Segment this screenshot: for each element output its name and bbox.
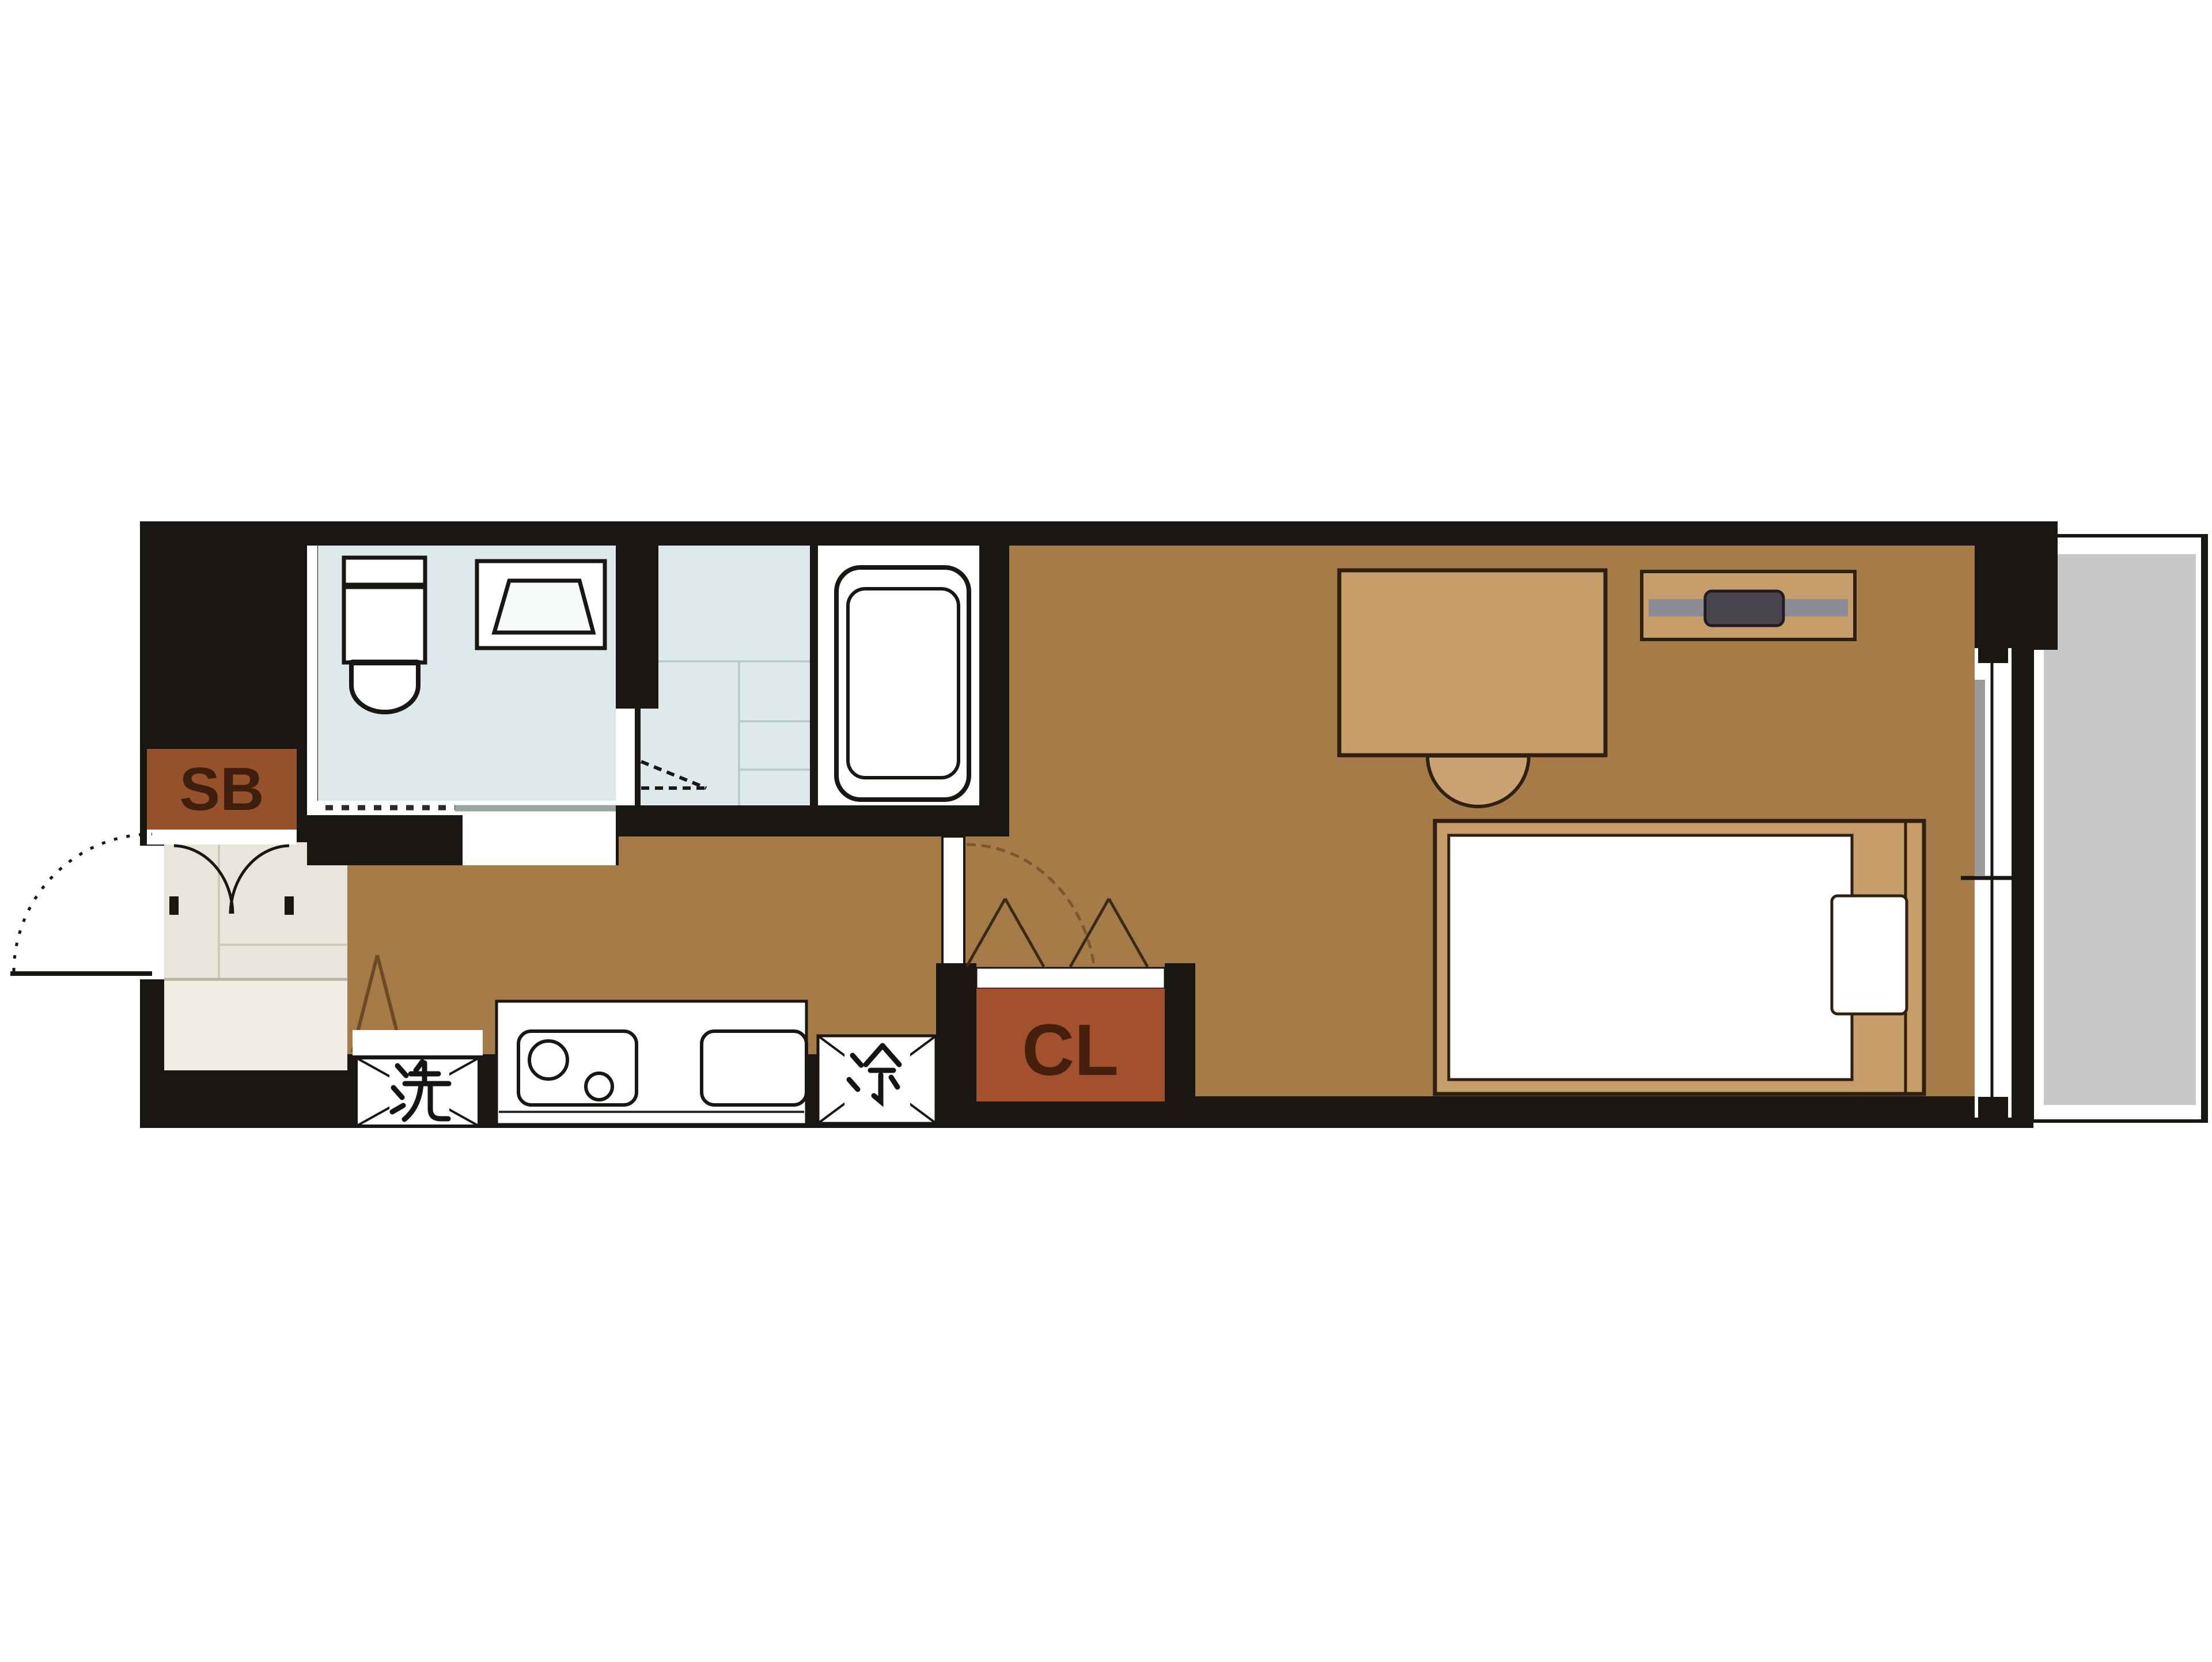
window-pane-bar [1975, 680, 1985, 876]
tv [1705, 591, 1783, 626]
bed-pillow [1832, 896, 1907, 1014]
shoe-box-label: SB [179, 755, 264, 823]
wet-room-door-gap [616, 709, 635, 805]
wall-right-of-bath [979, 546, 1009, 836]
wall-under-closet [976, 1101, 1165, 1128]
toilet-door-opening [463, 815, 616, 865]
shoe-box-front-strip [147, 830, 297, 845]
closet-label: CL [1022, 1009, 1119, 1091]
entry-floor-step [164, 979, 347, 1070]
shoe-box-door-stub-right [285, 896, 294, 915]
bed-mattress [1449, 835, 1852, 1080]
shower-room-floor-ext [641, 709, 658, 805]
desk [1339, 570, 1605, 755]
floor-plan: SB CL [0, 0, 2212, 1659]
shower-room-floor [658, 546, 810, 805]
basin-bowl [494, 581, 593, 633]
entrance-door-swing-arc [14, 834, 152, 971]
closet-front-strip [976, 968, 1165, 989]
wall-under-toilet-room [307, 815, 463, 865]
toilet-bowl [351, 662, 418, 712]
toilet-tank [344, 558, 425, 662]
kitchen-sink [702, 1031, 806, 1105]
wall-gap-left-of-toilet [307, 546, 317, 801]
shower-bath-divider-wall [810, 546, 818, 805]
balcony-floor [2044, 554, 2196, 1105]
stove-burner-large [529, 1041, 567, 1079]
wall-right-of-closet [1165, 963, 1195, 1128]
washer-top-strip [353, 1030, 483, 1055]
wall-left-of-closet [936, 963, 976, 1128]
floor-plan-canvas: SB CL [0, 0, 2212, 1659]
wall-under-shower-bath [637, 805, 1009, 836]
bathtub-outer [836, 567, 969, 800]
shoe-box-door-stub-left [169, 896, 179, 915]
stove-burner-small [586, 1073, 612, 1100]
